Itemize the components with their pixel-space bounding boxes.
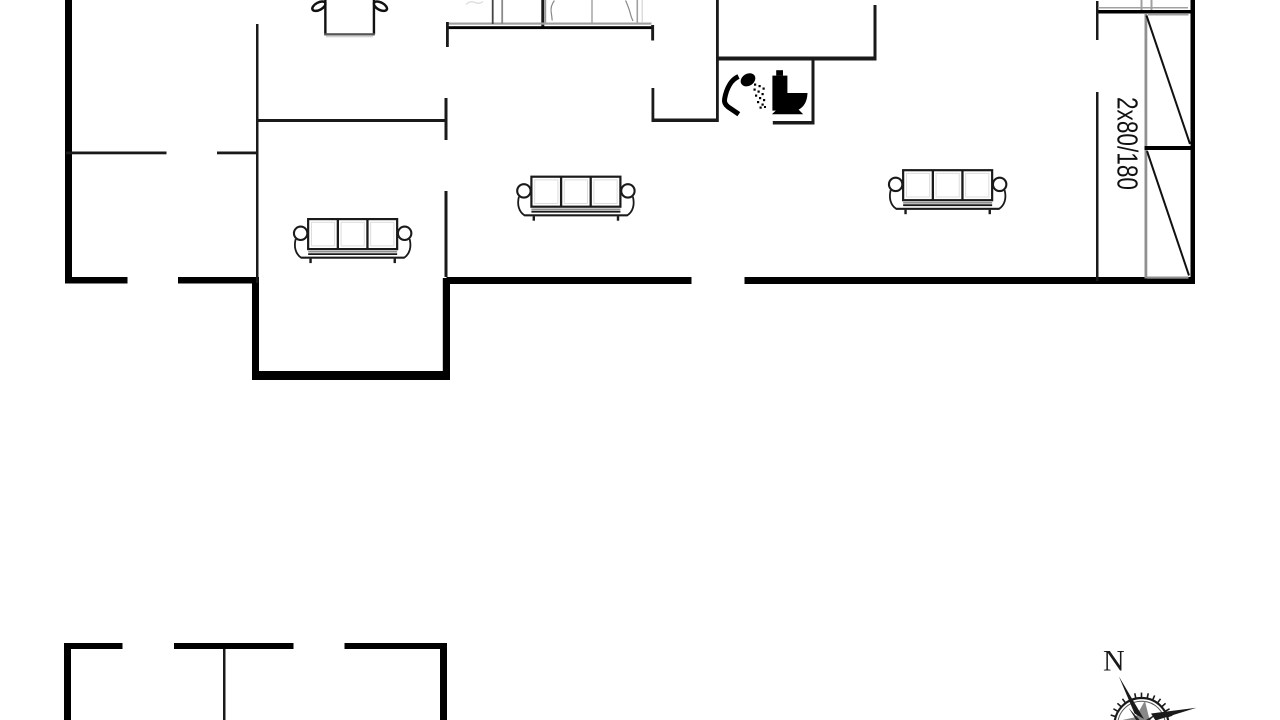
svg-text:2x80/180: 2x80/180 <box>1110 97 1142 190</box>
svg-text:N: N <box>1103 645 1125 678</box>
